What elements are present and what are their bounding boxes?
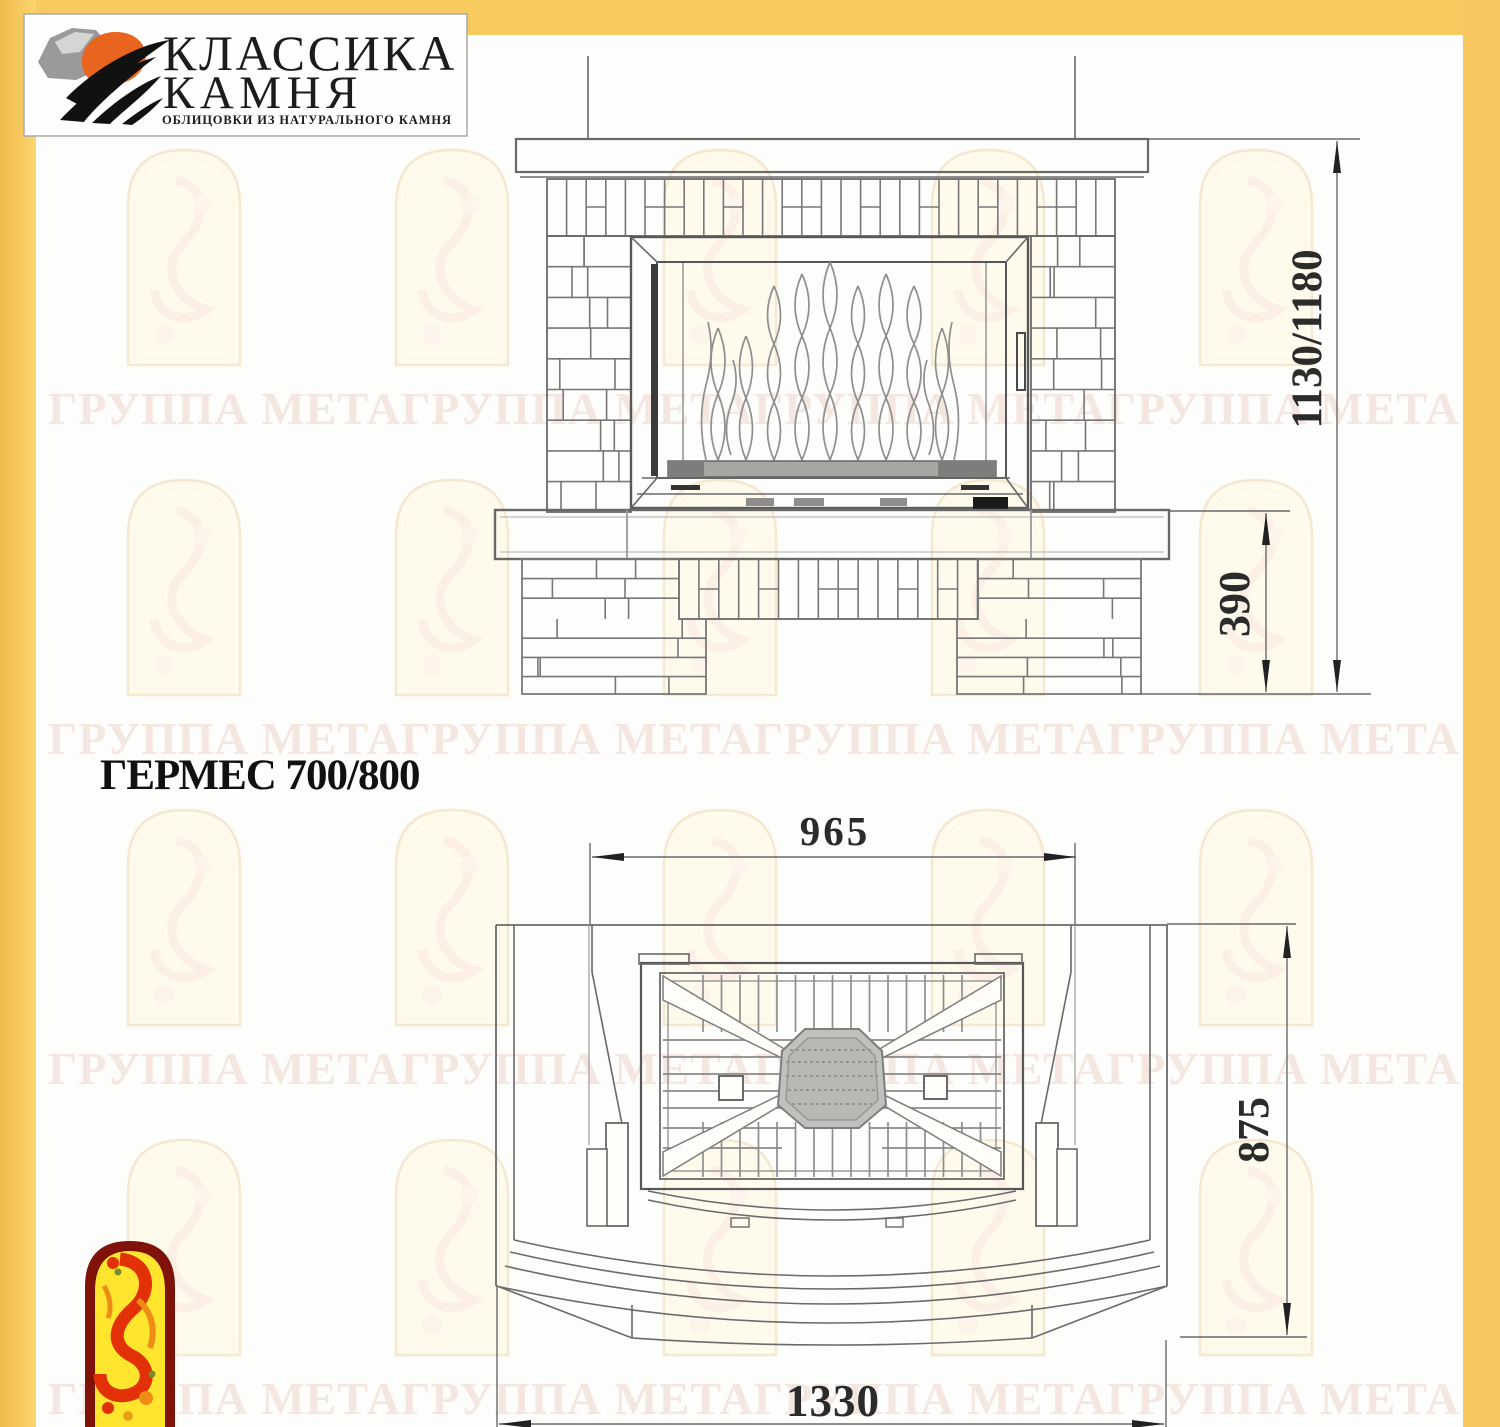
svg-text:1330: 1330 xyxy=(786,1376,880,1426)
svg-text:ГРУППА МЕТАГРУППА МЕТАГРУППА М: ГРУППА МЕТАГРУППА МЕТАГРУППА МЕТАГРУППА … xyxy=(48,1373,1460,1424)
svg-text:КАМНЯ: КАМНЯ xyxy=(163,67,363,119)
svg-text:ОБЛИЦОВКИ ИЗ НАТУРАЛЬНОГО КАМН: ОБЛИЦОВКИ ИЗ НАТУРАЛЬНОГО КАМНЯ xyxy=(162,113,452,127)
svg-text:965: 965 xyxy=(800,808,871,854)
svg-text:ГЕРМЕС 700/800: ГЕРМЕС 700/800 xyxy=(100,752,420,799)
svg-text:390: 390 xyxy=(1210,571,1259,637)
svg-text:875: 875 xyxy=(1229,1097,1278,1163)
svg-text:ГРУППА МЕТАГРУППА МЕТАГРУППА М: ГРУППА МЕТАГРУППА МЕТАГРУППА МЕТАГРУППА … xyxy=(48,383,1460,434)
svg-text:1130/1180: 1130/1180 xyxy=(1284,249,1331,428)
svg-text:ГРУППА МЕТАГРУППА МЕТАГРУППА М: ГРУППА МЕТАГРУППА МЕТАГРУППА МЕТАГРУППА … xyxy=(48,1043,1460,1094)
